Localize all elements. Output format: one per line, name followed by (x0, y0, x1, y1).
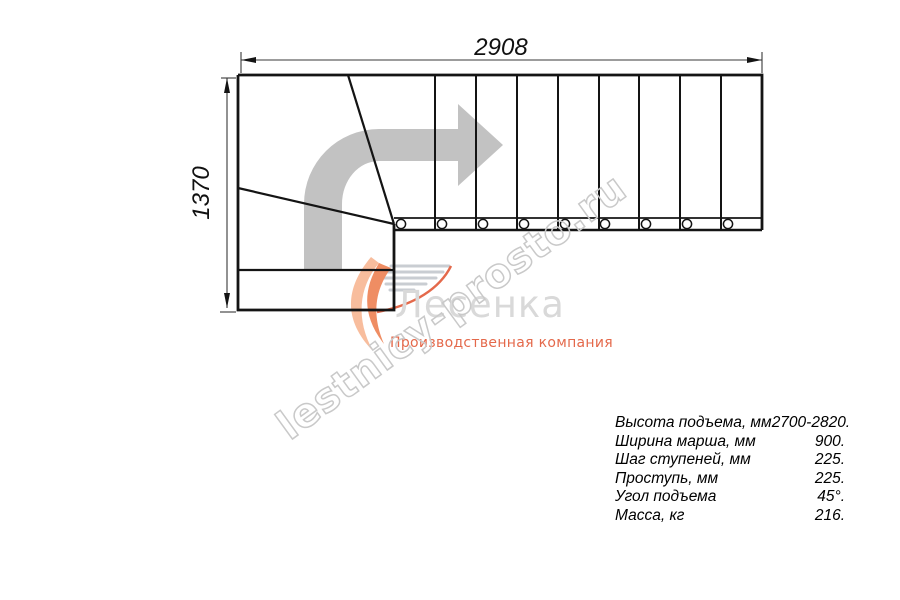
spec-row: Шаг ступеней, мм 225. (615, 451, 845, 470)
spec-value: 225. (815, 451, 845, 470)
spec-row: Ширина марша, мм 900. (615, 433, 845, 452)
dim-width-label: 2908 (473, 34, 528, 61)
spec-label: Шаг ступеней, мм (615, 451, 751, 470)
dim-arrow-right-icon (747, 57, 762, 63)
dim-arrow-left-icon (241, 57, 256, 63)
spec-label: Ширина марша, мм (615, 433, 756, 452)
spec-row: Угол подъема 45°. (615, 488, 845, 507)
dim-arrow-top-icon (224, 78, 230, 93)
dim-height-label: 1370 (188, 166, 215, 220)
spec-label: Проступь, мм (615, 470, 718, 489)
spec-row: Проступь, мм 225. (615, 470, 845, 489)
direction-arrow (304, 104, 503, 270)
specs-table: Высота подъема, мм 2700-2820. Ширина мар… (615, 414, 845, 526)
dimension-height (220, 78, 236, 312)
spec-label: Масса, кг (615, 507, 684, 526)
dim-arrow-bottom-icon (224, 293, 230, 308)
spec-value: 45°. (817, 488, 845, 507)
spec-value: 216. (815, 507, 845, 526)
spec-label: Угол подъема (615, 488, 716, 507)
spec-row: Масса, кг 216. (615, 507, 845, 526)
spec-value: 225. (815, 470, 845, 489)
spec-label: Высота подъема, мм (615, 414, 772, 433)
spec-value: 900. (815, 433, 845, 452)
spec-row: Высота подъема, мм 2700-2820. (615, 414, 845, 433)
spec-value: 2700-2820. (772, 414, 850, 433)
